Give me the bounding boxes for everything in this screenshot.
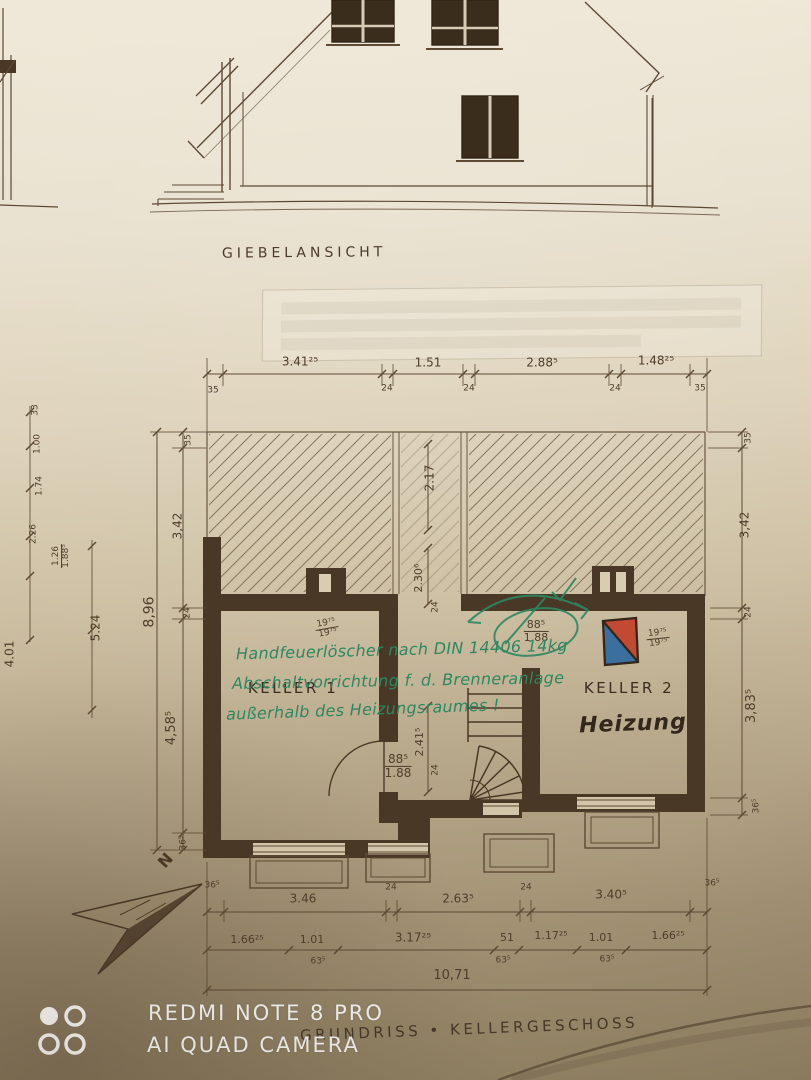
adjacent-elevation-fragment: [0, 8, 58, 207]
boiler-mark: [603, 618, 638, 665]
dim-sheet-33: 33: [31, 404, 40, 415]
dim-top-148: 1.48²⁵: [638, 355, 674, 368]
dim-b2-101l: 1.01: [300, 934, 325, 946]
dim-corridor-24b: 24: [431, 764, 440, 775]
dim-b2-101r: 1.01: [589, 932, 614, 944]
dim-b2-317: 3.17²⁵: [395, 932, 431, 945]
dim-b1-365l: 36⁵: [204, 881, 219, 890]
opening-dimension-keller2: 19⁷⁵ 19⁷⁵: [646, 628, 671, 650]
dim-corridor-24a: 24: [431, 601, 440, 612]
dim-b2-51: 51: [500, 932, 514, 944]
dim-sheet-524: 5.24: [90, 615, 103, 642]
dim-b1-365r: 36⁵: [704, 879, 719, 888]
drawing-linework: [0, 0, 811, 1080]
dim-corridor-217: 2.17: [424, 465, 437, 492]
dim-top-35l: 35: [207, 386, 218, 395]
room-label-keller2: KELLER 2: [584, 681, 674, 697]
dim-right-35: 35: [744, 432, 753, 443]
dim-left-365: 36⁵: [179, 835, 188, 850]
dim-b2-166r: 1.66²⁵: [651, 930, 684, 942]
dim-top-24a: 24: [381, 384, 392, 393]
dim-b2-635b: 63⁵: [495, 956, 510, 965]
dim-total-width: 10,71: [433, 969, 470, 983]
watermark-device: REDMI NOTE 8 PRO: [148, 1002, 384, 1024]
dim-left-35: 35: [184, 434, 193, 445]
blueprint-photo: GIEBELANSICHT 35 3.41²⁵ 24 1.51 24 2.88⁵…: [0, 0, 811, 1080]
dim-sheet-126-1885: 1.26 1.88⁵: [52, 544, 72, 568]
dim-sheet-100: 1.00: [33, 434, 42, 454]
elevation-title: GIEBELANSICHT: [222, 245, 386, 261]
dim-right-342: 3,42: [739, 512, 752, 539]
dim-top-24c: 24: [609, 384, 620, 393]
dim-sheet-401: 4.01: [4, 641, 17, 668]
door-dimension-keller1: 88⁵ 1.88: [385, 753, 412, 779]
camera-watermark-icon: [40, 1007, 84, 1053]
dim-b2-635a: 63⁵: [310, 957, 325, 966]
dim-sheet-226: 2.26: [29, 524, 38, 544]
dim-left-342: 3,42: [172, 513, 185, 540]
dim-corridor-230: 2.30⁶: [413, 564, 425, 593]
door-swing-keller1: [329, 741, 384, 796]
dim-corridor-241: 2.41⁵: [414, 728, 426, 757]
watermark-camera: AI QUAD CAMERA: [147, 1034, 360, 1056]
dim-b2-635c: 63⁵: [599, 955, 614, 964]
dim-left-total: 8,96: [143, 596, 158, 627]
dim-b1-24a: 24: [385, 883, 396, 892]
dim-b1-24b: 24: [520, 883, 531, 892]
dim-left-458: 4,58⁵: [165, 711, 179, 745]
dim-right-365: 36⁵: [752, 798, 761, 813]
room-label-heizung: Heizung: [579, 711, 688, 738]
dim-top-35r: 35: [694, 384, 705, 393]
dim-left-24: 24: [183, 607, 192, 618]
dim-right-383: 3,83⁵: [745, 689, 759, 723]
dim-right-24: 24: [744, 606, 753, 617]
dim-top-341: 3.41²⁵: [282, 356, 318, 369]
dim-b2-117: 1.17²⁵: [534, 930, 567, 942]
dim-top-151: 1.51: [415, 357, 442, 370]
elevation-windows: [326, 0, 524, 161]
dim-b1-346: 3.46: [290, 893, 317, 906]
dim-top-288: 2.88⁵: [526, 357, 558, 370]
north-arrow: [72, 884, 202, 974]
dim-sheet-174: 1.74: [35, 476, 44, 496]
dim-top-24b: 24: [463, 384, 474, 393]
opening-dimension-keller1: 19⁷⁵ 19⁷⁵: [314, 617, 340, 641]
dim-b2-166l: 1.66²⁵: [230, 934, 263, 946]
dim-b1-340: 3.40⁵: [595, 889, 627, 902]
gable-elevation-drawing: [150, 0, 720, 215]
dim-b1-263: 2.63⁵: [442, 893, 474, 906]
